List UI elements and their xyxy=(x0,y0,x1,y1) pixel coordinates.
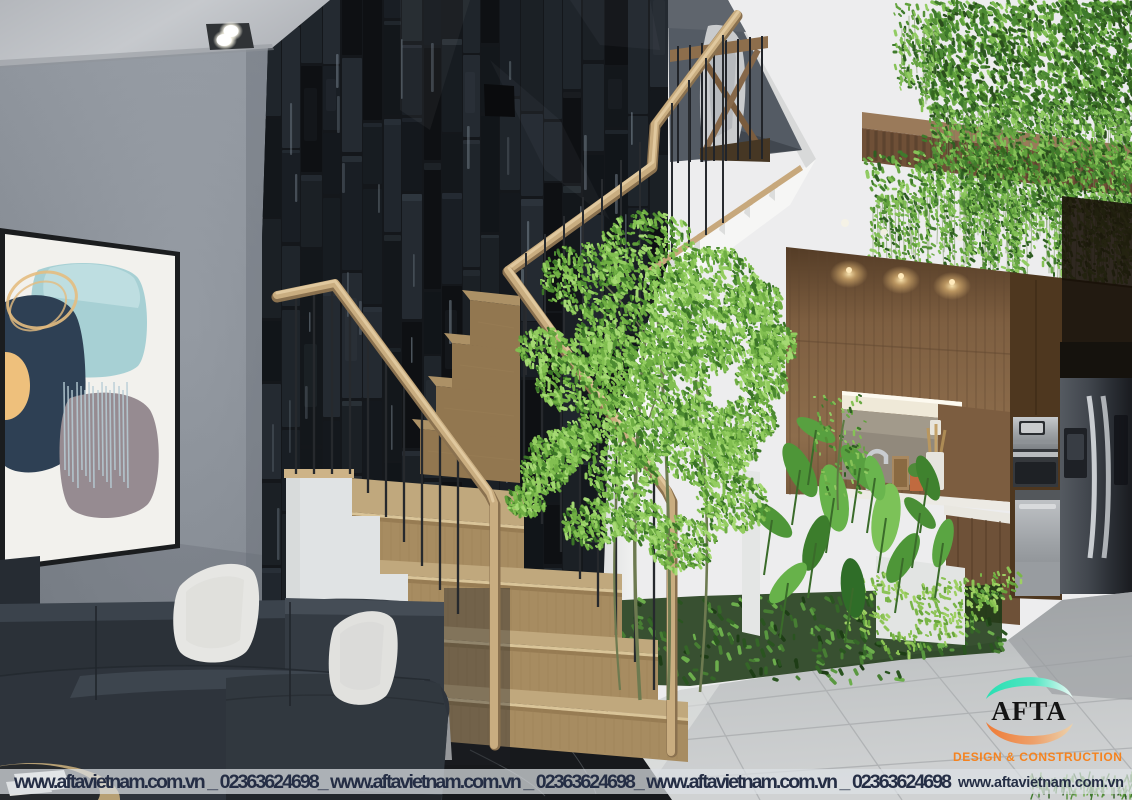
svg-text:www.aftavietnam.com.vn _ 02363: www.aftavietnam.com.vn _ 02363624698_ ww… xyxy=(13,771,952,793)
svg-text:DESIGN & CONSTRUCTION: DESIGN & CONSTRUCTION xyxy=(953,750,1123,764)
svg-text:www.aftavietnam.com.vn: www.aftavietnam.com.vn xyxy=(957,775,1124,791)
svg-text:AFTA: AFTA xyxy=(991,696,1067,726)
